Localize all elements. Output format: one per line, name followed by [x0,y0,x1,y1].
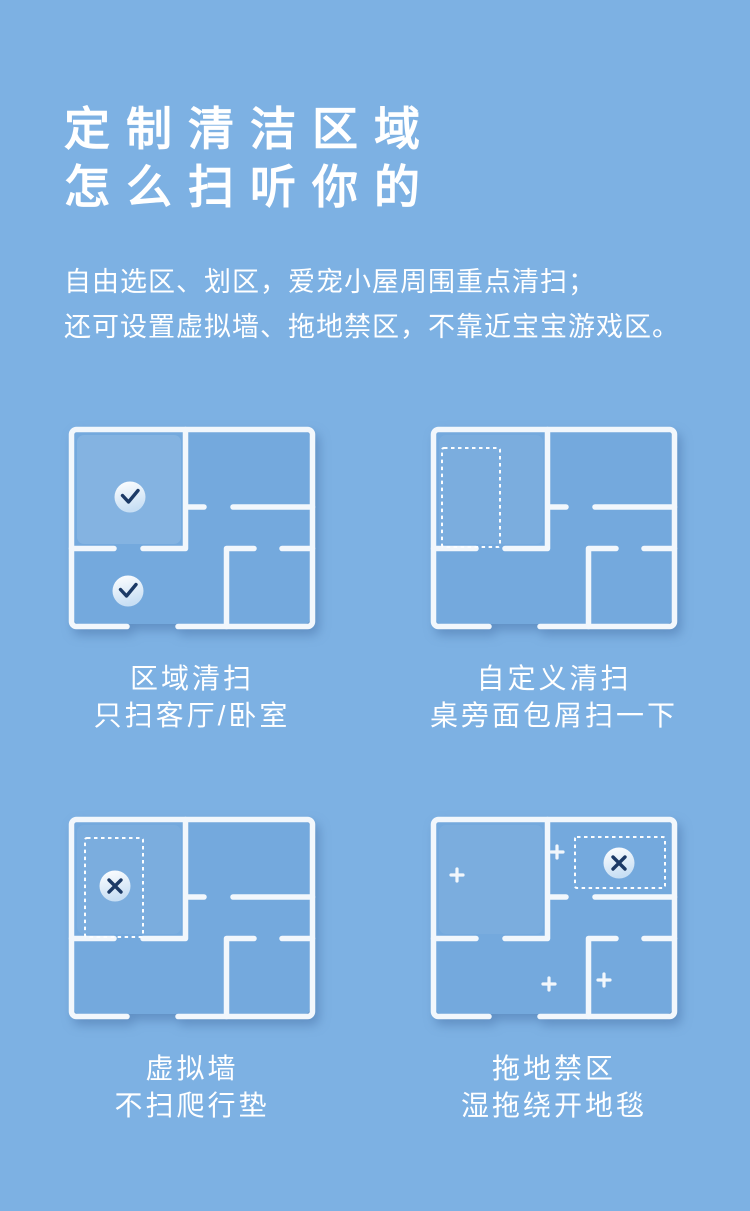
room-highlight [439,435,543,544]
floorplan-no-mop-zone [430,816,678,1020]
feature-no-mop-zone: 拖地禁区 湿拖绕开地毯 [430,816,678,1124]
cross-icon [100,871,131,902]
feature-desc: 不扫爬行垫 [68,1087,316,1124]
feature-title: 拖地禁区 [430,1050,678,1087]
floorplan-zone-cleaning [68,426,316,630]
floorplan-svg [430,816,678,1020]
check-icon [115,482,146,513]
feature-caption: 虚拟墙 不扫爬行垫 [68,1050,316,1124]
floorplan-virtual-wall [68,816,316,1020]
product-feature-page: 定制清洁区域 怎么扫听你的 自由选区、划区，爱宠小屋周围重点清扫； 还可设置虚拟… [0,0,750,1211]
feature-title: 虚拟墙 [68,1050,316,1087]
feature-title: 区域清扫 [68,660,316,697]
check-icon [113,576,144,607]
feature-caption: 区域清扫 只扫客厅/卧室 [68,660,316,734]
subtitle-line-1: 自由选区、划区，爱宠小屋周围重点清扫； [64,260,680,305]
floorplan-custom-cleaning [430,426,678,630]
feature-caption: 自定义清扫 桌旁面包屑扫一下 [430,660,678,734]
feature-desc: 只扫客厅/卧室 [68,697,316,734]
title-line-2: 怎么扫听你的 [64,158,436,216]
page-title: 定制清洁区域 怎么扫听你的 [64,100,436,216]
floorplan-svg [68,816,316,1020]
page-subtitle: 自由选区、划区，爱宠小屋周围重点清扫； 还可设置虚拟墙、拖地禁区，不靠近宝宝游戏… [64,260,680,350]
cross-icon [604,848,635,879]
feature-zone-cleaning: 区域清扫 只扫客厅/卧室 [68,426,316,734]
feature-desc: 湿拖绕开地毯 [430,1087,678,1124]
feature-virtual-wall: 虚拟墙 不扫爬行垫 [68,816,316,1124]
floorplan-svg [68,426,316,630]
feature-title: 自定义清扫 [430,660,678,697]
floorplan-svg [430,426,678,630]
room-highlight [439,825,543,934]
feature-custom-cleaning: 自定义清扫 桌旁面包屑扫一下 [430,426,678,734]
title-line-1: 定制清洁区域 [64,100,436,158]
feature-caption: 拖地禁区 湿拖绕开地毯 [430,1050,678,1124]
feature-desc: 桌旁面包屑扫一下 [430,697,678,734]
subtitle-line-2: 还可设置虚拟墙、拖地禁区，不靠近宝宝游戏区。 [64,305,680,350]
